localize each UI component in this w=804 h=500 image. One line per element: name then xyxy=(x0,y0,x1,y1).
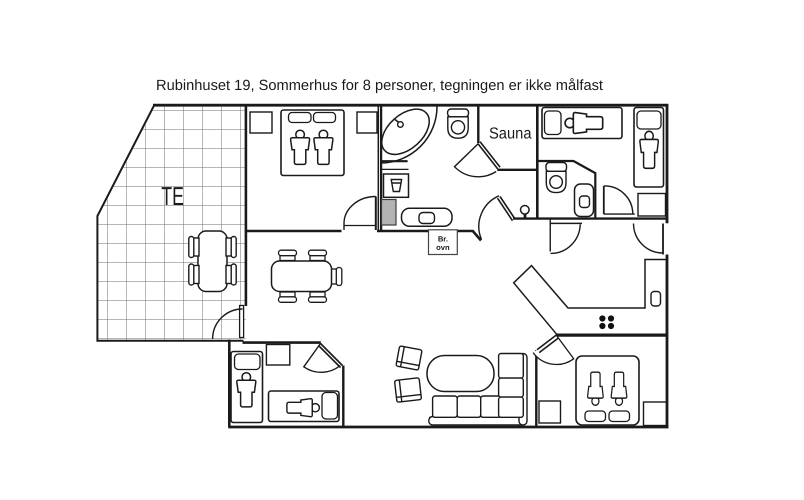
svg-text:ovn: ovn xyxy=(436,243,450,252)
svg-text:TE: TE xyxy=(161,181,184,211)
svg-text:Sauna: Sauna xyxy=(489,126,532,143)
svg-text:Rubinhuset 19, Sommerhus for 8: Rubinhuset 19, Sommerhus for 8 personer,… xyxy=(156,78,603,94)
